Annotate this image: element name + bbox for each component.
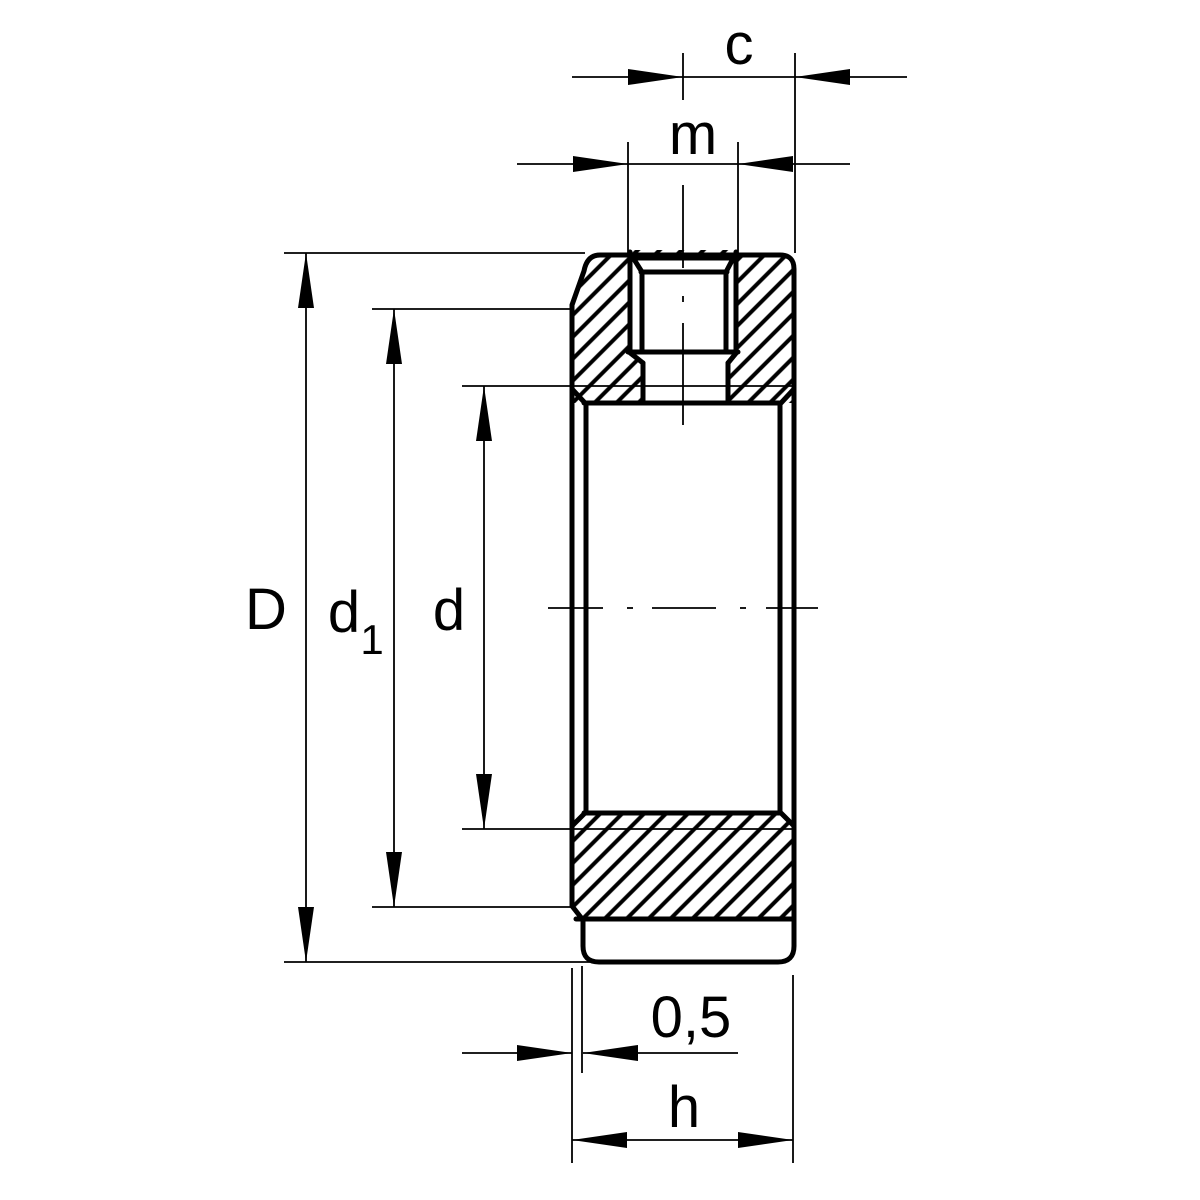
dim-label-d: d [433,578,465,643]
dimension-c: c [572,12,907,253]
dim-label-h: h [668,1075,700,1140]
dim-label-d1: d [328,580,360,645]
drawing-canvas: c m D d 1 d [0,0,1200,1200]
dim-label-d1-subscript: 1 [360,616,383,663]
dimension-D: D [245,253,600,962]
section-drawing: c m D d 1 d [0,0,1200,1200]
dim-label-D: D [245,577,287,642]
dimension-relief-0-5: 0,5 [462,966,738,1073]
dim-label-m: m [669,102,717,167]
dim-label-c: c [725,12,754,77]
dim-label-relief: 0,5 [651,985,732,1050]
